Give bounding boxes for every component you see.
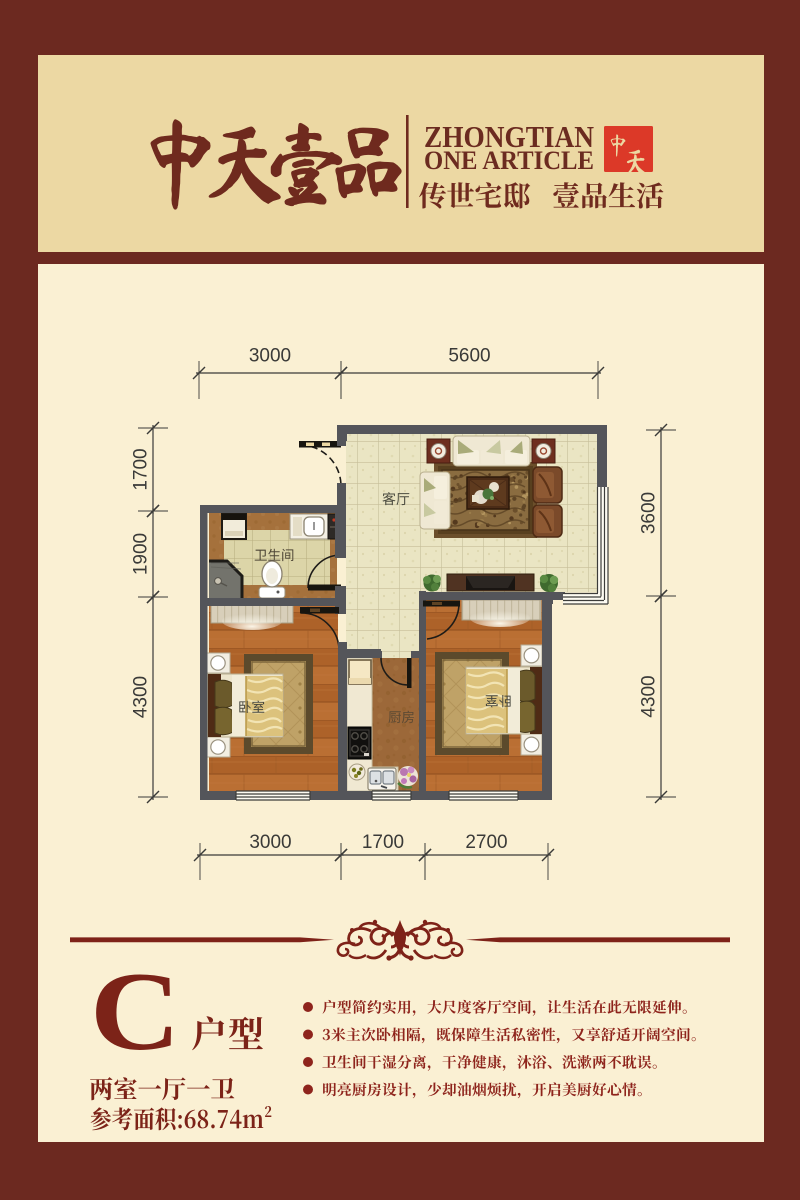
svg-text:1700: 1700: [362, 832, 404, 853]
svg-text:2700: 2700: [465, 832, 507, 853]
svg-text:4300: 4300: [131, 676, 152, 718]
svg-text:4300: 4300: [639, 675, 660, 717]
svg-text:ONE ARTICLE: ONE ARTICLE: [424, 146, 594, 175]
svg-text:1700: 1700: [131, 448, 152, 490]
svg-text:3600: 3600: [639, 492, 660, 534]
svg-text:3000: 3000: [249, 346, 291, 367]
svg-text:5600: 5600: [448, 346, 490, 367]
svg-text:1900: 1900: [131, 533, 152, 575]
svg-text:3000: 3000: [249, 832, 291, 853]
svg-text:C: C: [90, 949, 181, 1073]
